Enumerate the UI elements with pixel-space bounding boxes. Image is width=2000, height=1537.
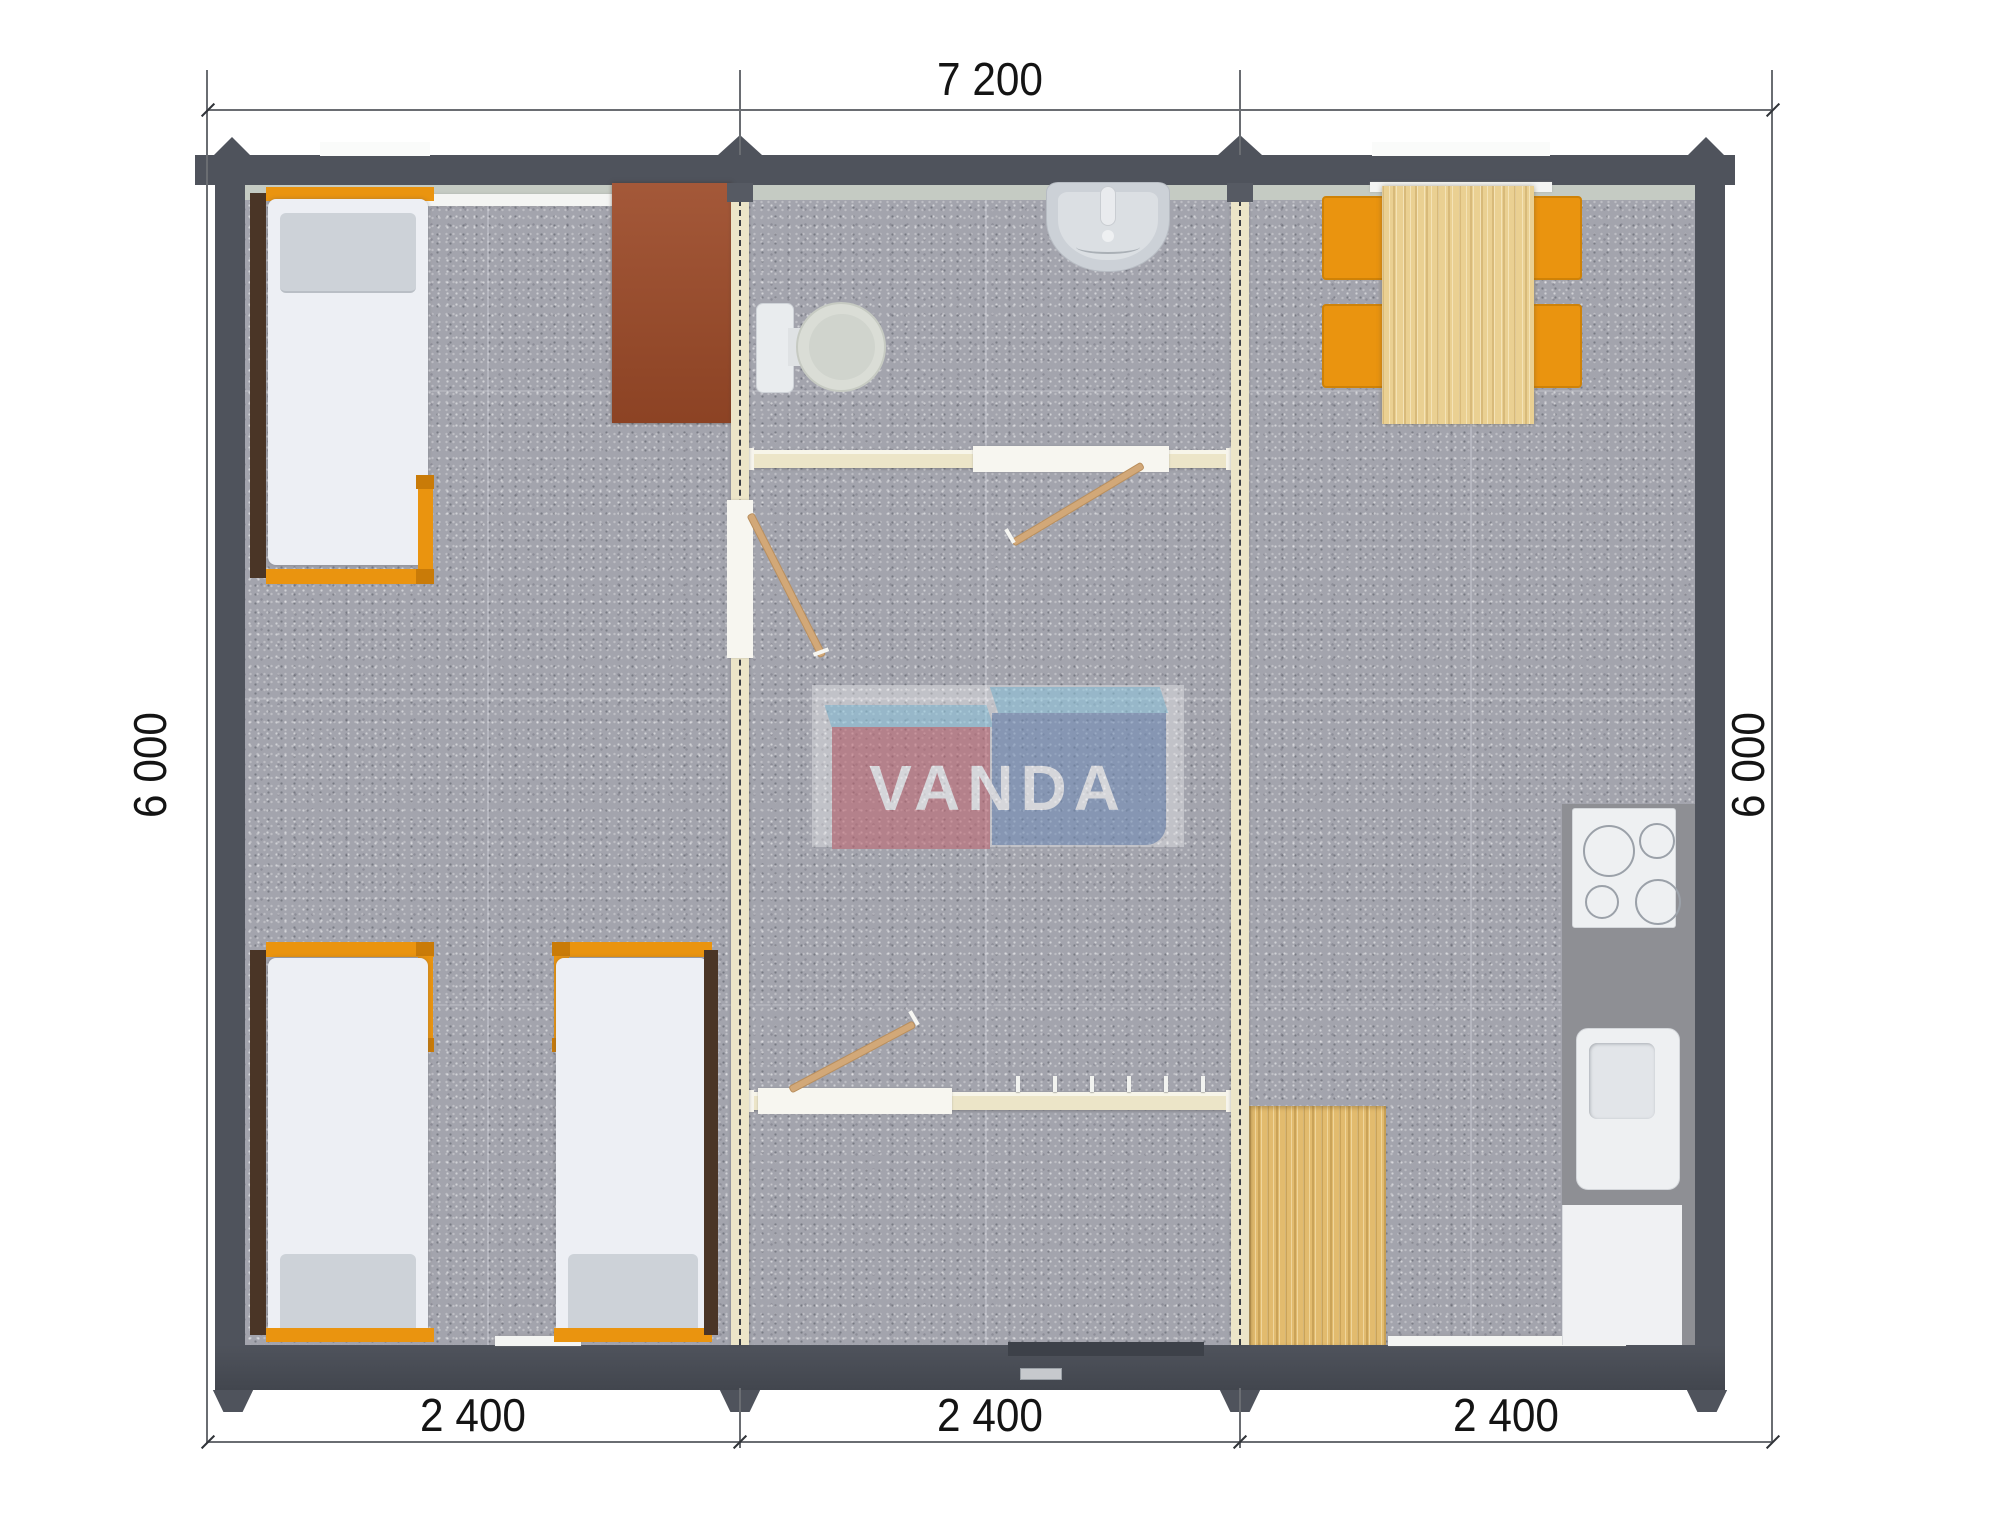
single-bed-4 [552,942,718,1342]
partition-wall-right [1231,200,1249,1345]
dimension-label-top: 7 200 [898,52,1082,106]
outer-wall-top [195,155,1735,185]
dining-table [1382,186,1534,424]
partition-top-connector [1227,183,1253,202]
bed-knob [416,942,434,956]
support-foot [209,1390,257,1412]
bed-foot-bar [266,942,434,957]
basin-faucet [1100,186,1116,226]
dimension-label-bottom-3: 2 400 [1414,1388,1598,1442]
vanda-watermark: VANDA [812,665,1184,860]
entrance-door [1008,1342,1204,1356]
window [1372,142,1550,156]
cooktop [1572,808,1676,928]
support-foot [1683,1390,1731,1412]
extension-line [1239,70,1241,155]
coat-hook [1053,1076,1057,1092]
coat-hook [1127,1076,1131,1092]
partition-wall-left [731,200,749,1345]
burner [1583,825,1635,877]
burner [1635,879,1681,925]
floor-plan-canvas: VANDA [0,0,2000,1537]
bed-side-rail [704,950,718,1335]
floor-seam [245,1004,1695,1006]
door-opening [758,1088,952,1114]
outer-wall-bottom [215,1345,1725,1390]
basin-edge [1076,240,1140,254]
bed-side-rail [250,950,266,1335]
watermark-blue-box-top [990,687,1168,713]
burner [1639,823,1675,859]
watermark-red-box-top [824,705,993,727]
module-joint-marker [1688,137,1724,155]
wood-deck [1249,1106,1386,1345]
coat-hook [1164,1076,1168,1092]
coat-hook [1090,1076,1094,1092]
door-opening [727,500,753,658]
dimension-line-top [207,109,1773,111]
kitchen-sink [1576,1028,1680,1190]
bed-knob [416,475,434,489]
coat-hook [1201,1076,1205,1092]
bed-foot-rail [418,485,433,571]
coat-hook [1016,1076,1020,1092]
entrance-door-step [1020,1368,1062,1380]
window [320,142,430,156]
partition-top-connector [727,183,753,202]
bed-foot-bar [266,569,434,584]
dimension-label-bottom-1: 2 400 [381,1388,565,1442]
bed-head-bar [266,1328,434,1342]
cabinet [612,183,732,423]
toilet [756,298,890,394]
bed-foot-bar [554,942,712,957]
bed-head-bar [554,1328,712,1342]
dimension-label-bottom-2: 2 400 [898,1388,1082,1442]
base-cabinet [1562,1205,1682,1345]
dimension-label-left: 6 000 [123,673,177,857]
toilet-seat [809,314,875,380]
single-bed-1 [250,185,434,585]
bed-pillow [568,1254,698,1334]
dimension-line-left [206,70,208,1443]
module-joint-marker [214,137,250,155]
single-bed-3 [250,942,434,1342]
bed-knob [552,942,570,956]
bed-knob [416,569,434,584]
watermark-text: VANDA [824,751,1172,825]
floor-seam [487,200,489,1345]
extension-line [739,70,741,155]
burner [1585,885,1619,919]
bed-side-rail [250,193,266,578]
bed-pillow [280,1254,416,1334]
outer-wall-left [215,155,245,1390]
dimension-label-right: 6 000 [1721,673,1775,857]
bed-pillow [280,213,416,293]
sink-basin [1589,1043,1655,1119]
wash-basin [1046,182,1170,274]
